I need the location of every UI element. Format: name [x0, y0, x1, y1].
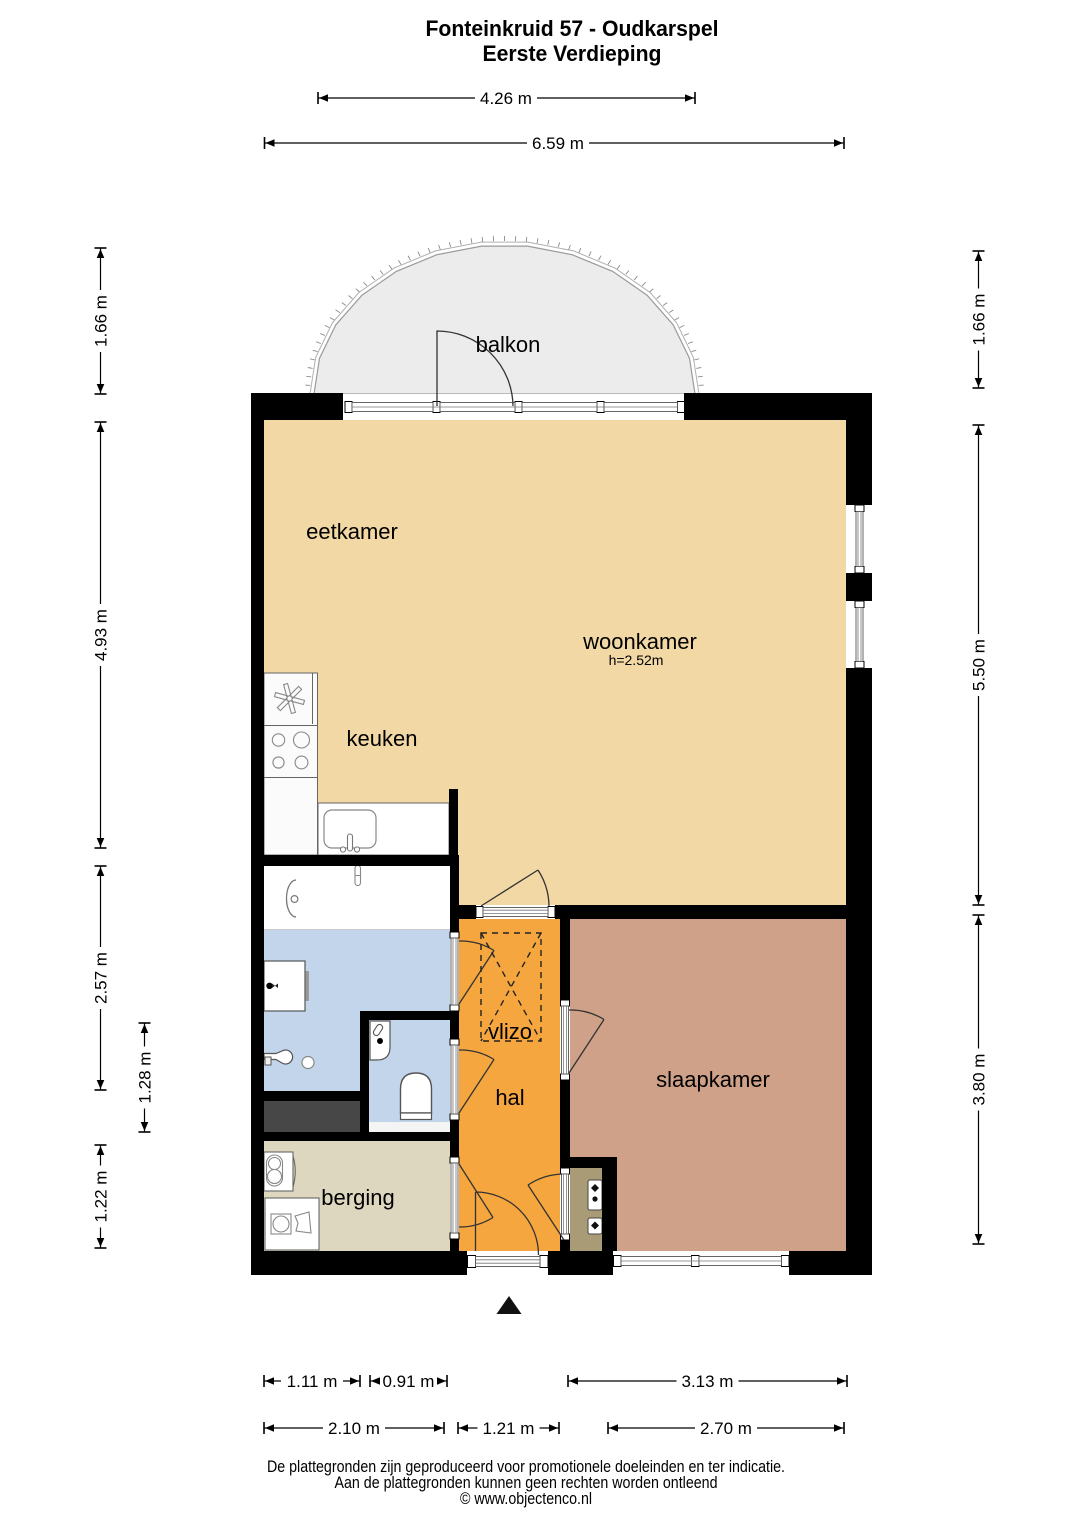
svg-text:1.11 m: 1.11 m: [287, 1372, 338, 1391]
svg-text:1.28 m: 1.28 m: [135, 1052, 154, 1104]
svg-text:6.59 m: 6.59 m: [532, 134, 584, 153]
svg-text:2.70 m: 2.70 m: [700, 1419, 752, 1438]
svg-text:0.91 m: 0.91 m: [383, 1372, 435, 1391]
svg-text:5.50 m: 5.50 m: [969, 639, 988, 691]
svg-text:keuken: keuken: [347, 726, 418, 751]
svg-text:4.93 m: 4.93 m: [91, 609, 110, 661]
svg-text:Fonteinkruid 57 - Oudkarspel: Fonteinkruid 57 - Oudkarspel: [426, 16, 719, 41]
svg-text:woonkamer: woonkamer: [582, 629, 697, 654]
svg-text:1.21 m: 1.21 m: [483, 1419, 535, 1438]
svg-text:1.66 m: 1.66 m: [91, 295, 110, 347]
svg-text:hal: hal: [495, 1085, 524, 1110]
svg-text:h=2.52m: h=2.52m: [609, 652, 664, 668]
svg-text:slaapkamer: slaapkamer: [656, 1067, 770, 1092]
svg-text:vlizo: vlizo: [488, 1019, 532, 1044]
svg-text:© www.objectenco.nl: © www.objectenco.nl: [460, 1489, 592, 1508]
svg-text:3.13 m: 3.13 m: [682, 1372, 734, 1391]
svg-text:Eerste Verdieping: Eerste Verdieping: [483, 41, 662, 66]
svg-text:eetkamer: eetkamer: [306, 519, 398, 544]
svg-text:balkon: balkon: [476, 332, 541, 357]
svg-text:4.26 m: 4.26 m: [480, 89, 532, 108]
svg-text:1.22 m: 1.22 m: [91, 1171, 110, 1223]
svg-text:2.57 m: 2.57 m: [91, 952, 110, 1004]
svg-text:3.80 m: 3.80 m: [969, 1054, 988, 1106]
svg-text:1.66 m: 1.66 m: [969, 294, 988, 346]
svg-text:2.10 m: 2.10 m: [328, 1419, 380, 1438]
svg-text:berging: berging: [321, 1185, 394, 1210]
